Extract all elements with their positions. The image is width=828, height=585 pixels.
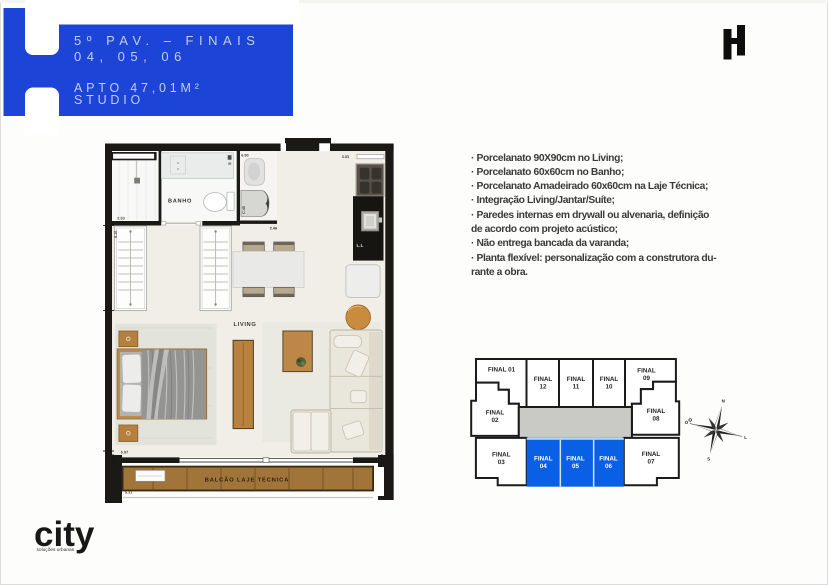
svg-text:07: 07 xyxy=(647,459,655,466)
svg-text:10: 10 xyxy=(605,384,613,391)
svg-text:L.L: L.L xyxy=(357,243,364,248)
svg-text:09: 09 xyxy=(643,375,651,382)
svg-text:FINAL: FINAL xyxy=(492,452,511,459)
svg-text:LIVING: LIVING xyxy=(234,321,257,328)
svg-text:FINAL: FINAL xyxy=(637,368,656,375)
svg-text:S: S xyxy=(707,457,710,462)
svg-text:04: 04 xyxy=(540,463,548,470)
svg-text:FINAL: FINAL xyxy=(534,456,553,463)
svg-text:FINAL: FINAL xyxy=(534,376,553,383)
svg-text:11: 11 xyxy=(573,384,580,391)
svg-text:5.97: 5.97 xyxy=(121,451,128,455)
svg-text:FINAL: FINAL xyxy=(486,410,505,417)
svg-text:L: L xyxy=(744,435,747,440)
svg-text:FINAL 01: FINAL 01 xyxy=(488,367,516,374)
svg-text:C.45: C.45 xyxy=(242,206,246,214)
svg-text:FINAL: FINAL xyxy=(600,376,619,383)
svg-text:03: 03 xyxy=(498,459,506,466)
svg-text:02: 02 xyxy=(491,417,499,424)
svg-text:6.90: 6.90 xyxy=(241,154,248,158)
svg-text:FINAL: FINAL xyxy=(647,408,666,415)
svg-text:N: N xyxy=(722,398,725,403)
svg-text:3.03: 3.03 xyxy=(342,155,349,159)
svg-text:FINAL: FINAL xyxy=(599,456,618,463)
svg-text:BANHO: BANHO xyxy=(168,199,192,205)
svg-text:BALCÃO LAJE TÉCNICA: BALCÃO LAJE TÉCNICA xyxy=(205,476,289,484)
svg-text:FINAL: FINAL xyxy=(642,451,661,458)
svg-text:8.16: 8.16 xyxy=(114,231,118,238)
svg-text:2.53: 2.53 xyxy=(117,217,124,221)
svg-text:O: O xyxy=(685,420,689,425)
svg-text:FINAL: FINAL xyxy=(566,456,585,463)
svg-text:06: 06 xyxy=(605,463,613,470)
svg-text:08: 08 xyxy=(652,416,660,423)
svg-text:12: 12 xyxy=(539,384,547,391)
svg-text:2.46: 2.46 xyxy=(270,227,277,231)
svg-text:FINAL: FINAL xyxy=(567,376,586,383)
svg-text:5.31: 5.31 xyxy=(125,491,132,495)
svg-text:05: 05 xyxy=(572,463,580,470)
